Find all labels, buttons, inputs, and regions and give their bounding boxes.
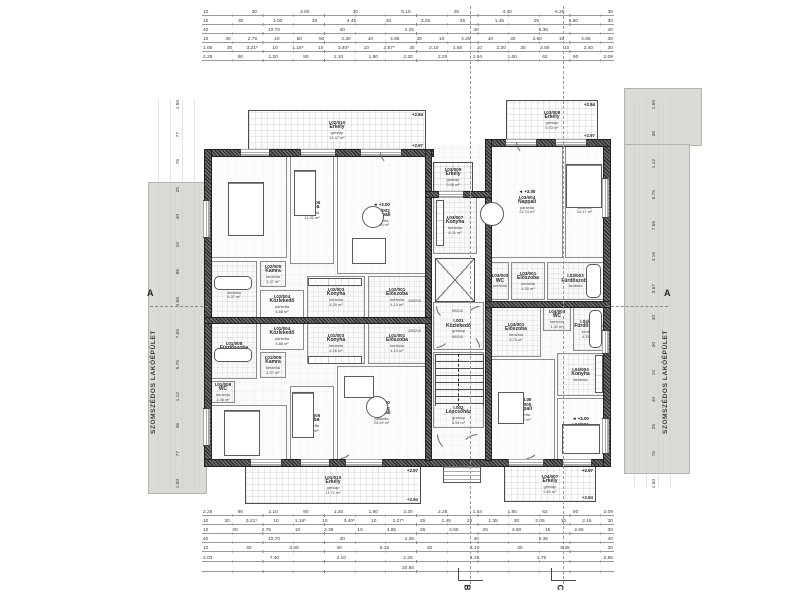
dimension-value: 30 xyxy=(509,37,516,42)
dimension-value: 3.60 xyxy=(511,528,522,533)
elevation-mark: +2.94 xyxy=(412,112,423,117)
dimension-value: 10 xyxy=(202,519,209,524)
dimension-value: 10.70 xyxy=(267,28,281,33)
dimension-value: 90 xyxy=(572,510,579,515)
dimension-value: 25 xyxy=(482,528,489,533)
room-area: 22.74 m² xyxy=(519,210,534,214)
room-area: 5.88 m² xyxy=(275,342,288,346)
room-material: greslap xyxy=(452,329,465,333)
dimension-value: 2.20 xyxy=(496,46,507,51)
elevation-mark: +2.97 xyxy=(582,468,593,473)
dimension-value: 4.85 xyxy=(386,528,397,533)
dimension-value: 4.85 xyxy=(389,37,400,42)
dimension-value: 4.16 xyxy=(652,252,657,261)
dimension-value: 30 xyxy=(416,37,423,42)
room-area: 1.07 m² xyxy=(266,280,279,284)
section-marker-a-left: A xyxy=(147,288,154,298)
window xyxy=(508,459,544,466)
dimension-value: 3.21⁵ xyxy=(245,519,258,524)
dimension-value: 2.25 xyxy=(404,537,415,542)
dimension-value: 2.10 xyxy=(267,510,278,515)
room-area: 1.06 m² xyxy=(216,398,229,402)
dimension-value: 10 xyxy=(273,37,280,42)
dimension-value: 2.10 xyxy=(428,46,439,51)
dimension-value: 1.16⁵ xyxy=(294,519,307,524)
room-material: kerámia xyxy=(569,284,583,288)
room-area: 14.17 m² xyxy=(577,210,592,214)
dimension-value: 1.00 xyxy=(202,46,213,51)
window xyxy=(203,200,210,238)
dining-table xyxy=(498,392,524,424)
dimension-value: 1.16⁵ xyxy=(291,46,304,51)
dimension-value: 30 xyxy=(513,519,520,524)
dimension-value: 1.54 xyxy=(472,510,483,515)
dim-chain-bottom-3: 10302.75102.36104.85252.65253.60152.6530 xyxy=(202,525,614,534)
room-area: 4.13 m² xyxy=(390,349,403,353)
dimension-value: 90 xyxy=(302,55,309,60)
dimension-value: 30 xyxy=(226,46,233,51)
kitchen-counter xyxy=(436,200,444,246)
dimension-value: 15 xyxy=(544,528,551,533)
dimension-value: 30 xyxy=(652,342,657,347)
elevation-mark: +2.94 xyxy=(582,495,593,500)
dimension-value: 2.30 xyxy=(402,510,413,515)
dimension-value: 10 xyxy=(202,19,209,24)
round-table xyxy=(366,396,388,418)
dimension-value: 1.12 xyxy=(176,392,181,401)
dimension-value: 2.25 xyxy=(437,55,448,60)
dimension-value: 30 xyxy=(607,528,614,533)
dimension-value: 30 xyxy=(245,546,252,551)
dim-chain-bottom-1: 2.25902.10901.201.802.302.251.541.806290… xyxy=(202,507,614,516)
dimension-value: 2.30 xyxy=(340,37,351,42)
dimension-value: 10 xyxy=(271,46,278,51)
dimension-value: 62 xyxy=(541,55,548,60)
dimension-value: 36 xyxy=(176,423,181,428)
elevation-mark: +2.94 xyxy=(407,497,418,502)
room-area: 5.70 m² xyxy=(509,338,522,342)
dining-table xyxy=(352,238,386,264)
dimension-value: 10 xyxy=(202,528,209,533)
dimension-value: 1.50 xyxy=(652,479,657,488)
dimension-value: 10 xyxy=(438,37,445,42)
dimension-value: 2.36 xyxy=(323,528,334,533)
dimension-value: 40 xyxy=(202,28,209,33)
door-size-tag: 90/210 xyxy=(452,336,463,340)
dimension-value: 10 xyxy=(487,37,494,42)
room-i-03-008: I.03/008Erkélygreslap5.03 m²+2.94+2.97 xyxy=(506,100,598,140)
dimension-value: 40 xyxy=(652,397,657,402)
room-i-03-003: I.03/003WCkerámia xyxy=(491,262,509,300)
dimension-value: 1.50 xyxy=(652,100,657,109)
room-area: 5.88 m² xyxy=(275,310,288,314)
dimension-value: 3.21⁵ xyxy=(246,46,259,51)
dim-chain-top-1: 10303.60305.15304.406.3530 xyxy=(202,7,614,16)
dimension-value: 2.75 xyxy=(261,528,272,533)
dimension-value: 25 xyxy=(419,519,426,524)
dimension-value: 2.10 xyxy=(333,55,344,60)
dimension-value: 1.60 xyxy=(506,55,517,60)
room-i-02-005: I.02/005Kamrakerámia1.07 m² xyxy=(260,261,286,287)
dimension-value: 40 xyxy=(607,537,614,542)
window xyxy=(438,191,464,198)
dimension-value: 30 xyxy=(352,10,359,15)
dimension-value: 30 xyxy=(453,10,460,15)
dimension-value: 2.25 xyxy=(202,510,213,515)
dimension-value: 30 xyxy=(607,10,614,15)
grid-bracket-b xyxy=(458,568,483,581)
door-size-tag: 100/210 xyxy=(408,330,421,334)
dimension-value: 10 xyxy=(202,37,209,42)
dim-chain-bottom-2: 10303.21⁵101.16⁵103.40⁵102.27⁵251.45251.… xyxy=(202,516,614,525)
room-area: 4.13 m² xyxy=(390,303,403,307)
dimension-value: 50 xyxy=(318,37,325,42)
room-i-02-004: I.02/004Közlekedőparketta5.88 m² xyxy=(260,290,304,318)
room-area: 8.21 m² xyxy=(448,231,461,235)
dimension-value: 40 xyxy=(339,537,346,542)
dimension-value: 2.15 xyxy=(581,519,592,524)
dimension-value: 30 xyxy=(251,10,258,15)
room-area: 5.03 m² xyxy=(545,126,558,130)
dimension-value: 10 xyxy=(563,46,570,51)
room-i-04-003: I.04/003WCkerámia1.40 m² xyxy=(543,307,571,331)
room-i-03-001: I.03/001Előszobakerámia5.35 m² xyxy=(511,262,545,300)
dimension-value: 1.60 xyxy=(452,46,463,51)
section-line-a-right xyxy=(606,306,668,307)
grid-line-b xyxy=(470,6,471,584)
grid-bracket-c xyxy=(551,568,576,581)
dimension-value: 2.25 xyxy=(404,28,415,33)
dimension-value: 25 xyxy=(176,187,181,192)
window xyxy=(562,459,592,466)
dimension-value: 6.35 xyxy=(559,546,570,551)
dimension-value: 2.25 xyxy=(402,556,413,561)
door-size-tag: 100/210 xyxy=(408,300,421,304)
dimension-value: 30 xyxy=(426,546,433,551)
bathtub xyxy=(214,348,252,362)
dimension-value: 10 xyxy=(294,528,301,533)
dimension-value: 2.40 xyxy=(583,46,594,51)
dimension-value: 2.05 xyxy=(534,519,545,524)
dimension-value: 10 xyxy=(321,519,328,524)
dimension-value: 40 xyxy=(339,28,346,33)
dim-chain-top-4: 10302.751050502.30104.8530102.2510303.60… xyxy=(202,34,614,43)
dimension-value: 2.27⁵ xyxy=(392,519,405,524)
dimension-value: 2.09 xyxy=(603,510,614,515)
dimension-value: 25 xyxy=(533,19,540,24)
dimension-value: 4.40 xyxy=(501,10,512,15)
dimension-value: 1.80 xyxy=(368,510,379,515)
dimension-value: 7.65 xyxy=(176,329,181,338)
wall xyxy=(205,318,431,323)
window xyxy=(300,459,330,466)
dimension-value: 2.65 xyxy=(573,528,584,533)
dimension-value: 30 xyxy=(385,19,392,24)
dimension-value: 4.45 xyxy=(346,19,357,24)
dimension-value: 6.60 xyxy=(568,19,579,24)
dimension-value: 10 xyxy=(476,46,483,51)
elevation-mark: +2.97 xyxy=(412,143,423,148)
window xyxy=(300,149,336,156)
window xyxy=(602,178,609,218)
bed xyxy=(562,424,600,454)
dimension-value: 30 xyxy=(607,46,614,51)
dimension-value: 10 xyxy=(652,370,657,375)
grid-marker-b: B xyxy=(462,585,471,591)
room-i-03-009: I.03/009Erkélygreslap3.08 m² xyxy=(433,162,473,192)
room-area: 3.08 m² xyxy=(446,183,459,187)
entrance-steps xyxy=(443,466,481,483)
dimension-value: 50 xyxy=(296,37,303,42)
dimension-value: 2.85 xyxy=(603,556,614,561)
bathtub xyxy=(586,264,601,298)
dimension-value: 6.35 xyxy=(538,28,549,33)
wall xyxy=(486,302,610,307)
dimension-value: 10.70 xyxy=(267,537,281,542)
dimension-value: 3.00 xyxy=(272,19,283,24)
floor-plan-canvas: SZOMSZÉDOS LAKÓÉPÜLET SZOMSZÉDOS LAKÓÉPÜ… xyxy=(0,0,800,600)
dimension-value: 30 xyxy=(607,19,614,24)
dimension-value: 2.65 xyxy=(580,37,591,42)
grid-line-c xyxy=(563,6,564,584)
room-i-01-004: I.01/004Közlekedőparketta5.88 m² xyxy=(260,322,304,350)
dimension-value: 10 xyxy=(363,46,370,51)
room-area: 5.35 m² xyxy=(521,287,534,291)
dimension-value: 40 xyxy=(202,537,209,542)
dimension-value: 10 xyxy=(367,37,374,42)
room-area: 11.92 m² xyxy=(304,216,319,220)
dimension-value: 76 xyxy=(652,451,657,456)
dimension-value: 77 xyxy=(176,132,181,137)
dim-chain-bottom-4: 4010.70402.25406.3540 xyxy=(202,534,614,543)
dimension-value: 30 xyxy=(607,519,614,524)
dimension-value: 1.80 xyxy=(368,55,379,60)
dimension-value: 5.15 xyxy=(379,546,390,551)
dimension-value: 5.15 xyxy=(400,10,411,15)
window xyxy=(250,459,282,466)
dimension-value: 2.25 xyxy=(437,510,448,515)
dining-table xyxy=(344,376,374,398)
dimension-value: 40 xyxy=(473,28,480,33)
section-marker-a-right: A xyxy=(664,288,671,298)
dimension-value: 36 xyxy=(652,131,657,136)
elevation-mark: +2.97 xyxy=(584,133,595,138)
dimension-value: 1.54 xyxy=(472,55,483,60)
elevation-mark: +2.97 xyxy=(407,468,418,473)
dimension-value: 62 xyxy=(541,510,548,515)
room-i-01-010: I.01/010Erkélygreslap11.71 m²+2.97+2.94 xyxy=(245,466,421,504)
dimension-value: 3.60 xyxy=(299,10,310,15)
dimension-value: 1.35 xyxy=(487,519,498,524)
dimension-value: 2.10 xyxy=(336,556,347,561)
room-i-04-007: I.04/007Erkélygreslap5.60 m²+2.97+2.94 xyxy=(504,466,596,502)
dimension-value: 85 xyxy=(176,269,181,274)
dimension-value: 3.60 xyxy=(288,546,299,551)
room-area: 5.37 m² xyxy=(227,295,240,299)
round-table xyxy=(362,206,384,228)
dimension-value: 90 xyxy=(572,55,579,60)
dimension-value: 10 xyxy=(272,519,279,524)
dimension-value: 30 xyxy=(231,528,238,533)
dimension-value: 1.20 xyxy=(267,55,278,60)
dimension-value: 40 xyxy=(652,315,657,320)
dimension-value: 25 xyxy=(459,19,466,24)
room-area: 11.47 m² xyxy=(329,136,344,140)
wall xyxy=(486,140,491,460)
dimension-value: 7.40 xyxy=(269,556,280,561)
dimension-value: 10 xyxy=(370,519,377,524)
dimension-value: 3.40⁵ xyxy=(337,46,350,51)
room-i-04-001: I.04/001Előszobakerámia5.70 m² xyxy=(491,307,541,357)
dimension-value: 30 xyxy=(223,519,230,524)
dimension-value: 5.75 xyxy=(176,360,181,369)
dimension-value: 10 xyxy=(202,546,209,551)
dimension-value: 40 xyxy=(473,537,480,542)
dimension-value: 30 xyxy=(519,46,526,51)
door-size-tag: 90/210 xyxy=(452,310,463,314)
dimension-value: 2.30 xyxy=(402,55,413,60)
dimension-value: 1.12 xyxy=(652,159,657,168)
dimension-value: 77 xyxy=(176,451,181,456)
dimension-value: 90 xyxy=(302,510,309,515)
dimension-value: 15 xyxy=(558,37,565,42)
dimension-value: 25 xyxy=(652,424,657,429)
kitchen-counter xyxy=(308,356,362,364)
bed xyxy=(224,410,260,456)
room-i-02-001: I.02/001Előszobakerámia4.13 m² xyxy=(368,276,426,318)
dimension-value: 3.25 xyxy=(420,19,431,24)
bathtub xyxy=(589,310,602,348)
dimension-value: 3.67 xyxy=(652,284,657,293)
dimension-value: 1.45 xyxy=(440,519,451,524)
dimension-value: 10 xyxy=(317,46,324,51)
dimension-value: 4.66 xyxy=(176,297,181,306)
dimension-value: 10 xyxy=(176,242,181,247)
dimension-value: 30 xyxy=(237,19,244,24)
room-i-02-010: I.02/010Erkélygreslap11.47 m²+2.94+2.97 xyxy=(248,110,426,150)
room-area: 5.60 m² xyxy=(543,490,556,494)
dim-chain-left: 1.507776254010854.667.655.751.1236771.50 xyxy=(158,100,198,488)
bed xyxy=(566,164,602,208)
kitchen-counter xyxy=(308,278,362,286)
window xyxy=(602,330,609,354)
dim-chain-top-5: 1.00303.21⁵101.16⁵103.40⁵102.67⁵302.101.… xyxy=(202,43,614,52)
dim-chain-top-2: 10303.00304.45303.25251.45256.6030 xyxy=(202,16,614,25)
dimension-value: 1.80 xyxy=(506,510,517,515)
dimension-value: 3.40⁵ xyxy=(343,519,356,524)
grid-marker-c: C xyxy=(555,585,564,591)
round-table xyxy=(480,202,504,226)
dimension-value: 2.75 xyxy=(247,37,258,42)
bed xyxy=(294,170,316,216)
bathtub xyxy=(214,276,252,290)
dimension-value: 2.65 xyxy=(448,528,459,533)
bed xyxy=(292,392,314,438)
dim-chain-bottom-5: 10303.60305.15304.10306.3530 xyxy=(202,543,614,552)
dimension-value: 7.65 xyxy=(652,221,657,230)
dimension-value: 40 xyxy=(176,214,181,219)
section-line-a-left xyxy=(150,306,208,307)
elevation-mark: +2.94 xyxy=(584,102,595,107)
dimension-value: 2.00 xyxy=(539,46,550,51)
dimension-value: 2.03 xyxy=(202,556,213,561)
dimension-value: 90 xyxy=(237,510,244,515)
dimension-value: 30 xyxy=(607,546,614,551)
dimension-value: 30 xyxy=(311,19,318,24)
room-area: 8.26 m² xyxy=(329,349,342,353)
dimension-value: 3.60 xyxy=(531,37,542,42)
window xyxy=(602,418,609,454)
dimension-value: 1.50 xyxy=(176,479,181,488)
dimension-value: 2.25 xyxy=(202,55,213,60)
room-i-01-009: I.01/009WCkerámia1.06 m² xyxy=(211,381,235,403)
window xyxy=(555,139,587,146)
dimension-value: 2.67⁵ xyxy=(382,46,395,51)
room-area: 24.09 m² xyxy=(374,421,389,425)
window xyxy=(240,149,270,156)
room-material: kerámia xyxy=(493,284,507,288)
dimension-value: 10 xyxy=(356,528,363,533)
dimension-value: 6.35 xyxy=(538,537,549,542)
room-area: 6.94 m² xyxy=(452,421,465,425)
dim-chain-bottom-6: 2.037.402.102.251.453.752.85 xyxy=(202,553,614,562)
room-i-03-004: ◄ +3.00I.03/004Nappaliparketta22.74 m² xyxy=(491,146,563,258)
kitchen-counter xyxy=(595,355,603,393)
dimension-value: 30 xyxy=(516,546,523,551)
dim-chain-top-3: 4010.70402.25406.3540 xyxy=(202,25,614,34)
dimension-value: 40 xyxy=(607,28,614,33)
window xyxy=(345,459,383,466)
room-area: 8.29 m² xyxy=(329,303,342,307)
stairs-rail xyxy=(458,354,459,406)
dimension-value: 1.20 xyxy=(333,510,344,515)
lift-shaft xyxy=(435,258,475,302)
dimension-value: 10 xyxy=(202,10,209,15)
dimension-value: 90 xyxy=(237,55,244,60)
room-area: 11.71 m² xyxy=(325,491,340,495)
room-area: 1.40 m² xyxy=(550,325,563,329)
dimension-value: 30 xyxy=(408,46,415,51)
room-area: 1.07 m² xyxy=(266,371,279,375)
room-i-01-005: I.01/005Kamrakerámia1.07 m² xyxy=(260,352,286,378)
dimension-value: 3.75 xyxy=(536,556,547,561)
room-material: kerámia xyxy=(574,378,588,382)
dimension-value: 25 xyxy=(419,528,426,533)
dimension-value: 30 xyxy=(224,37,231,42)
neighbor-label-left: SZOMSZÉDOS LAKÓÉPÜLET xyxy=(150,298,157,434)
dimension-value: 1.50 xyxy=(176,100,181,109)
dimension-value: 30 xyxy=(607,37,614,42)
dim-chain-top-6: 2.25901.20902.101.802.302.251.541.606290… xyxy=(202,52,614,61)
dimension-value: 76 xyxy=(176,159,181,164)
dimension-value: 1.45 xyxy=(494,19,505,24)
dimension-value: 20.80 xyxy=(401,566,415,571)
window xyxy=(203,408,210,446)
dimension-value: 30 xyxy=(336,546,343,551)
stairs xyxy=(435,354,484,406)
dimension-value: 5.75 xyxy=(652,190,657,199)
dimension-value: 2.09 xyxy=(603,55,614,60)
bed xyxy=(228,182,264,236)
